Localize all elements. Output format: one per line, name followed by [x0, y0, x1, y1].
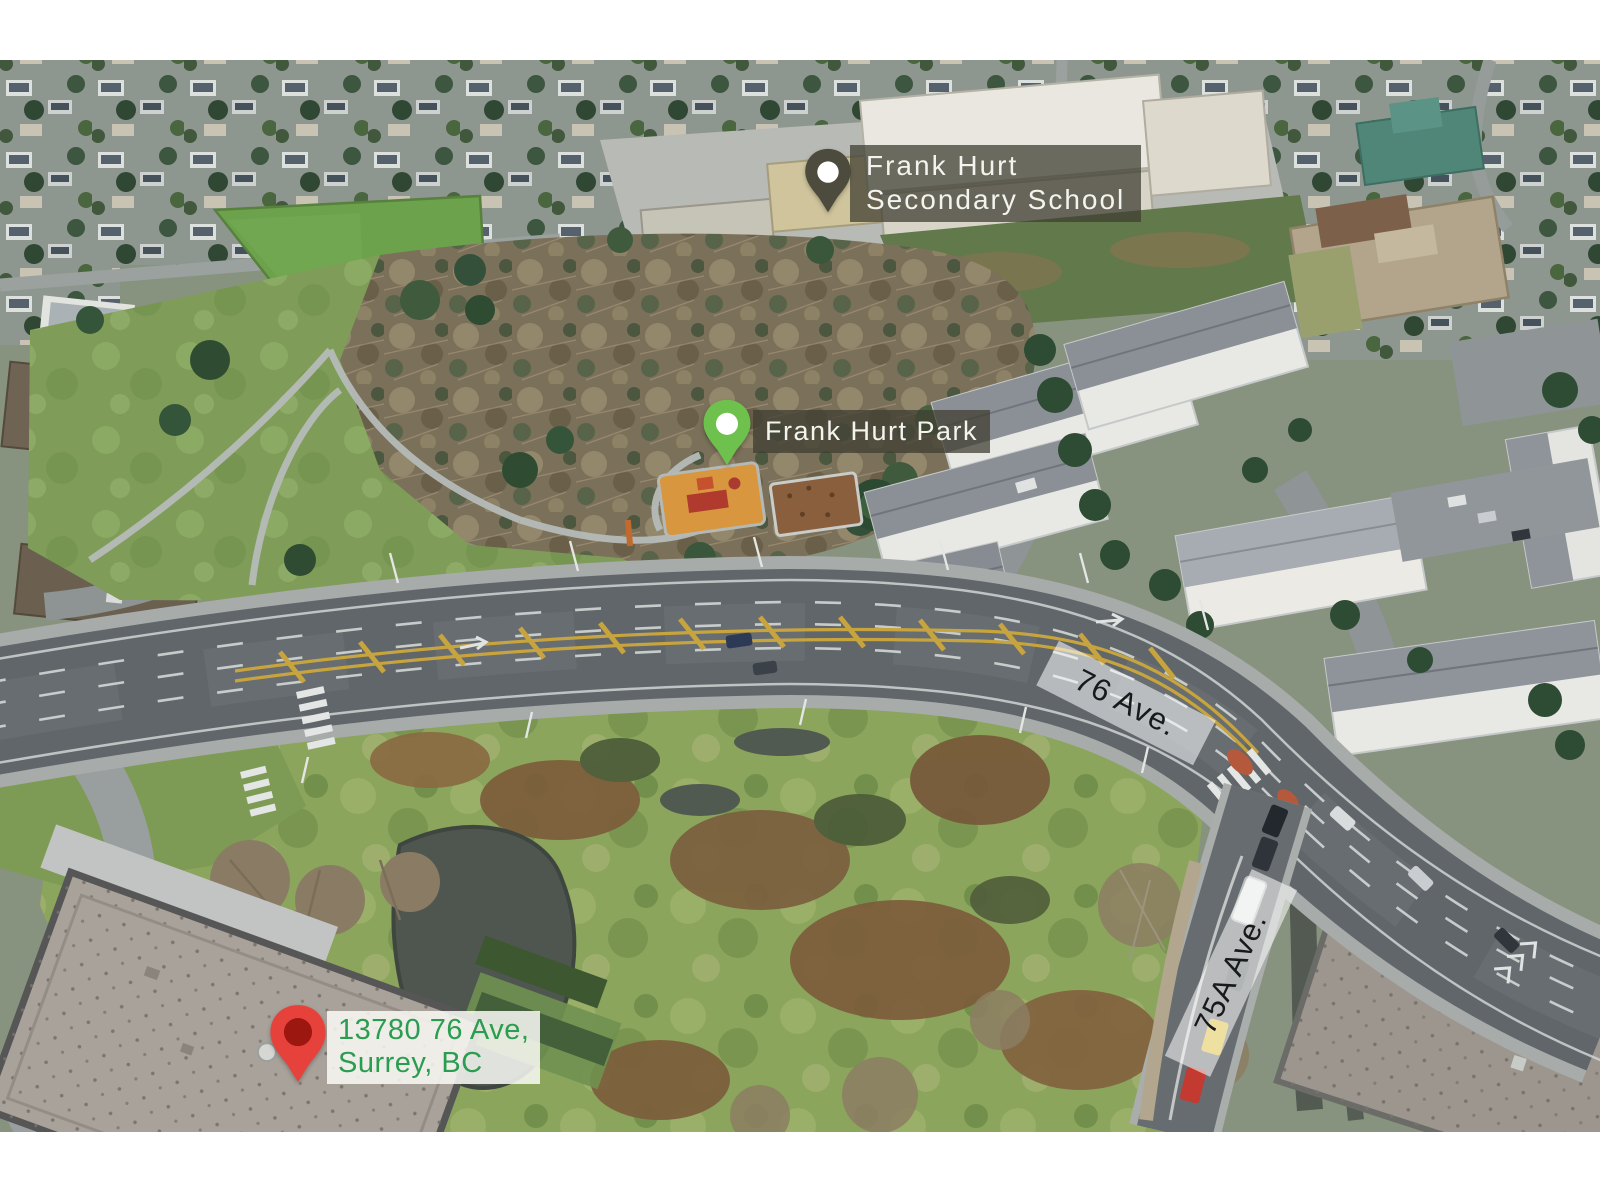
park-label-text: Frank Hurt Park [765, 416, 978, 446]
park-label: Frank Hurt Park [753, 410, 990, 453]
property-address-line2: Surrey, BC [338, 1047, 529, 1080]
school-label-line1: Frank Hurt [866, 149, 1125, 183]
property-address-label: 13780 76 Ave, Surrey, BC [327, 1011, 540, 1084]
property-pin-icon [267, 1004, 329, 1084]
park-pin-icon [701, 399, 753, 467]
school-pin-icon [803, 148, 853, 214]
school-label: Frank Hurt Secondary School [850, 145, 1141, 222]
school-label-line2: Secondary School [866, 183, 1125, 217]
aerial-photo: Frank Hurt Secondary School Frank Hurt P… [0, 60, 1600, 1132]
aerial-scene [0, 60, 1600, 1132]
property-address-line1: 13780 76 Ave, [338, 1014, 529, 1047]
